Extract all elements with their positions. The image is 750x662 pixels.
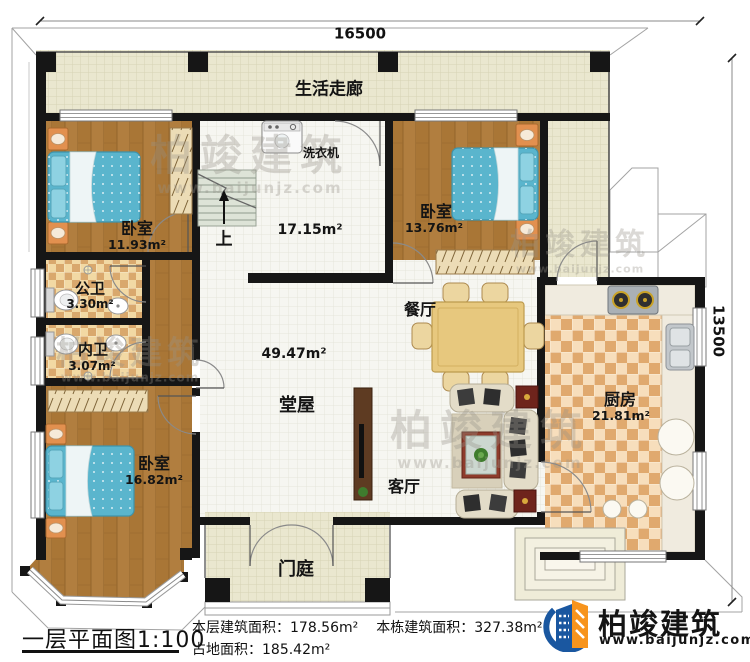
label-living-name: 客厅 — [388, 479, 420, 495]
back-steps — [515, 528, 625, 600]
label-kitchen-name: 厨房 — [604, 392, 636, 408]
plan-title-underline — [22, 650, 179, 653]
window-bedroom1-top — [60, 110, 172, 121]
pillow — [49, 450, 63, 478]
label-hall-name: 堂屋 — [279, 397, 315, 415]
label-bath-private-name: 内卫 — [78, 343, 108, 358]
stat-floor-area-value: 178.56m² — [290, 620, 358, 636]
wardrobe-bedroom1 — [170, 128, 192, 214]
living-set — [450, 384, 538, 518]
window-bath-public — [31, 269, 44, 317]
label-bath-private-area: 3.07m² — [68, 360, 115, 372]
label-bedroom3-area: 16.82m² — [125, 474, 183, 487]
window-bedroom3-left — [31, 432, 44, 518]
pillow — [51, 156, 66, 186]
window-bath-private — [31, 337, 44, 385]
stat-land-area-value: 185.42m² — [262, 642, 330, 658]
dining-chair — [482, 283, 508, 303]
wardrobe-bedroom2 — [436, 250, 534, 274]
window-bedroom2-top — [415, 110, 517, 121]
floorplan-page: 柏竣建筑 www.baijunjz.com 柏竣建筑 www.baijunjz.… — [0, 0, 750, 662]
label-bedroom2-name: 卧室 — [420, 204, 452, 220]
dimension-top: 16500 — [334, 27, 386, 42]
window-kitchen-bottom — [580, 551, 666, 562]
toilet-tank — [46, 288, 54, 312]
tv — [359, 424, 364, 478]
label-bedroom2-area: 13.76m² — [405, 222, 463, 235]
tv-cabinet — [354, 388, 372, 500]
label-bedroom1-area: 11.93m² — [108, 239, 166, 252]
label-bedroom1-name: 卧室 — [121, 221, 153, 237]
stats-line-2: 占地面积：185.42m² — [192, 640, 543, 662]
kitchen-table — [660, 466, 694, 500]
dimension-right: 13500 — [711, 305, 726, 357]
window-kitchen-right-2 — [693, 452, 706, 510]
plant — [358, 487, 368, 497]
kitchen-stool — [603, 500, 621, 518]
label-washer: 洗衣机 — [303, 147, 339, 159]
kitchen-stool — [629, 500, 647, 518]
company-logo-icon — [538, 596, 596, 652]
washing-machine — [262, 121, 302, 153]
window-kitchen-right-1 — [693, 308, 706, 366]
label-hall-area: 49.47m² — [261, 347, 326, 361]
floorplan-drawing — [0, 0, 750, 662]
label-corridor: 生活走廊 — [295, 82, 363, 99]
pillow — [520, 153, 534, 181]
label-bath-public-area: 3.30m² — [66, 298, 113, 310]
label-porch-name: 门庭 — [278, 561, 314, 579]
toilet-tank — [46, 332, 54, 356]
company-website: www.baijunjz.com — [599, 633, 750, 648]
dining-chair — [443, 283, 469, 303]
wardrobe-bedroom3 — [48, 390, 148, 412]
floor-corridor-right — [548, 115, 609, 277]
dining-chair — [412, 323, 432, 349]
pillow — [51, 189, 66, 218]
stat-land-area-label: 占地面积： — [192, 642, 262, 658]
pillow — [520, 186, 534, 214]
stat-building-area-value: 327.38m² — [474, 620, 542, 636]
stairs — [198, 170, 256, 226]
floor-strip — [150, 260, 192, 385]
dining-table — [432, 302, 524, 372]
label-utility-area: 17.15m² — [277, 223, 342, 237]
dining-chair — [524, 323, 544, 349]
stat-building-area-label: 本栋建筑面积： — [376, 620, 474, 636]
label-bath-public-name: 公卫 — [75, 282, 105, 297]
label-kitchen-area: 21.81m² — [592, 410, 650, 423]
pillow — [49, 482, 63, 510]
kitchen-table — [658, 419, 694, 455]
stat-floor-area-label: 本层建筑面积： — [192, 620, 290, 636]
label-dining-name: 餐厅 — [404, 302, 436, 318]
label-stairs-up: 上 — [216, 232, 233, 249]
area-statistics: 本层建筑面积：178.56m²本栋建筑面积：327.38m² 占地面积：185.… — [192, 618, 543, 661]
stats-line-1: 本层建筑面积：178.56m²本栋建筑面积：327.38m² — [192, 618, 543, 640]
label-bedroom3-name: 卧室 — [138, 456, 170, 472]
